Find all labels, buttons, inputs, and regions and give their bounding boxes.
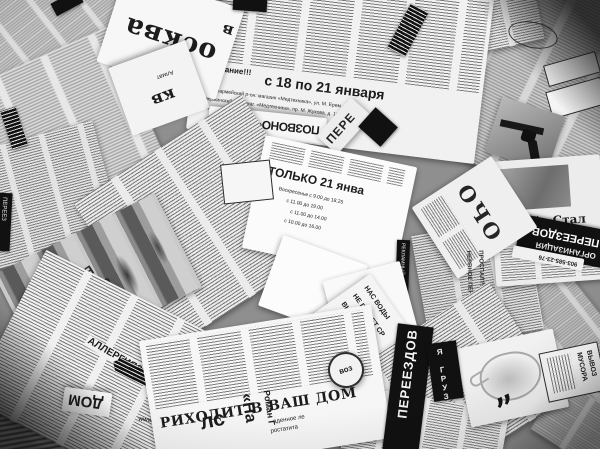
vyvoz-text-1: ВЫВОЗ	[585, 350, 597, 377]
voz-text: воз	[338, 364, 353, 376]
ya-gruz-text: Я ГРУЗ	[435, 347, 450, 402]
roman-text: Роман Г	[262, 390, 276, 427]
pereez-left-text: ПЕРЕЕЗ	[0, 197, 7, 221]
boxed-ad	[220, 159, 274, 204]
tolko21-time: с 10.00 до 16.00	[284, 219, 322, 232]
moscow-masthead-tail: в	[220, 21, 236, 40]
almat-text: Алмат	[156, 68, 175, 80]
newspaper-collage-photo: Внимание!!! с 18 по 21 января Красноарме…	[0, 0, 600, 449]
kv-text: кв	[149, 84, 177, 108]
pereezdov-vertical-text: ПЕРЕЕЗДОВ	[395, 328, 419, 419]
dom-text: ДОМ	[67, 391, 104, 411]
ls-big-text: лс	[198, 408, 227, 434]
roman-vertical-text: Роман Г «На	[236, 384, 305, 449]
na-quote-text: «На	[238, 392, 258, 424]
ad-fine-print	[547, 353, 578, 393]
